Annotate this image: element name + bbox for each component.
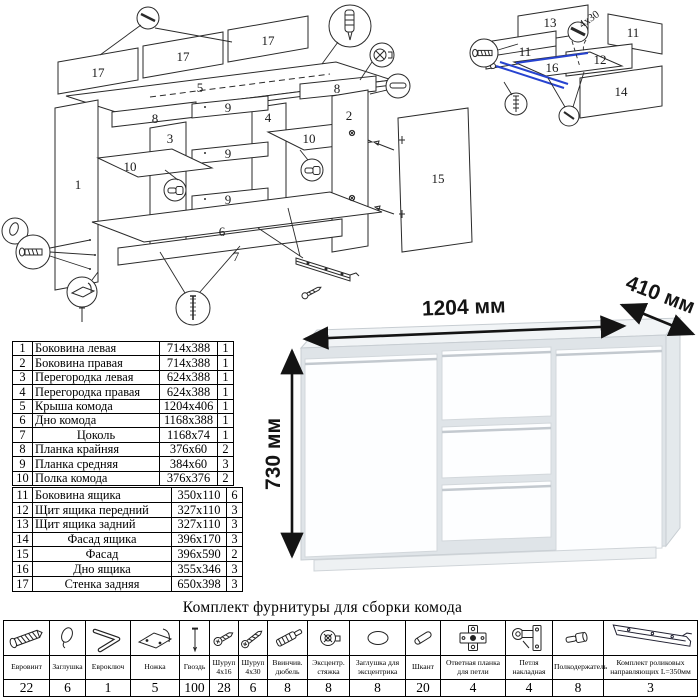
width-dimension-label: 1204 мм — [421, 294, 505, 320]
hardware-label: Шуруп 4x16 — [210, 656, 239, 680]
part-label: 1 — [75, 177, 82, 192]
screw-4x16-icon — [210, 623, 238, 653]
part-label: 9 — [225, 192, 232, 207]
nail-icon — [181, 623, 209, 653]
parts-list: 1Боковина левая714x3881 2Боковина правая… — [12, 341, 243, 593]
hardware-qty-row: 22 6 1 5 100 28 6 8 8 8 20 4 4 8 3 — [4, 680, 698, 697]
hardware-label: Ножка — [131, 656, 180, 680]
part-label: 3 — [167, 131, 174, 146]
part-label: 16 — [546, 60, 560, 75]
part-label: 8 — [152, 111, 159, 126]
part-label: 17 — [92, 65, 106, 80]
hardware-qty: 4 — [441, 680, 506, 697]
table-row: 8Планка крайняя376x602 — [13, 442, 234, 456]
dresser-door-right — [556, 346, 662, 552]
table-row: 15Фасад396x5902 — [13, 547, 243, 562]
table-row: 7Цоколь1168x741 — [13, 428, 234, 442]
hardware-label: Эксцентр. стяжка — [308, 656, 350, 680]
table-row: 14Фасад ящика396x1703 — [13, 532, 243, 547]
exploded-diagram-drawer: 13 11 11 12 16 14 4x30 — [448, 0, 700, 152]
hardware-label: Гвоздь — [180, 656, 210, 680]
hardware-qty: 22 — [4, 680, 50, 697]
hardware-label: Заглушка — [50, 656, 86, 680]
hardware-qty: 3 — [604, 680, 698, 697]
eurovint-icon — [5, 623, 49, 653]
hardware-qty: 8 — [553, 680, 604, 697]
detail-threaded-dowel-icon — [322, 5, 371, 64]
parts-table-drawers: 11Боковина ящика350x1106 12Щит ящика пер… — [12, 487, 243, 592]
hardware-qty: 100 — [180, 680, 210, 697]
hardware-table: Евровинт Заглушка Евроключ Ножка Гвоздь … — [3, 620, 698, 697]
hex-key-icon — [86, 623, 130, 653]
part-label: 8 — [334, 81, 341, 96]
table-row: 16Дно ящика355x3463 — [13, 562, 243, 577]
foot-icon — [132, 623, 178, 653]
part-label: 6 — [219, 224, 226, 239]
hardware-qty: 8 — [308, 680, 350, 697]
hardware-label: Ответная планка для петли — [441, 656, 506, 680]
part-label: 15 — [432, 171, 445, 186]
table-row: 5Крыша комода1204x4061 — [13, 399, 234, 413]
part-label: 9 — [225, 100, 232, 115]
detail-shelf-pin-right-icon — [300, 150, 323, 181]
table-row: 12Щит ящика передний327x1103 — [13, 502, 243, 517]
hardware-label: Комплект роликовых направляющих L=350мм — [604, 656, 698, 680]
table-row: 10Полка комода376x3762 — [13, 471, 234, 485]
panel-side-left — [55, 100, 98, 290]
eccentric-cam-icon — [308, 623, 350, 653]
screw-4x30-icon — [239, 623, 267, 653]
dresser-door-left — [305, 354, 437, 557]
dresser-render: 730 мм 1204 мм 410 мм — [268, 288, 700, 600]
hardware-qty: 8 — [268, 680, 308, 697]
table-row: 17Стенка задняя650x3983 — [13, 577, 243, 592]
threaded-dowel-icon — [268, 623, 308, 653]
drawer-rail-icon — [606, 622, 696, 654]
hardware-qty: 6 — [239, 680, 268, 697]
hardware-label: Ввинчив. дюбель — [268, 656, 308, 680]
hardware-qty: 8 — [350, 680, 406, 697]
hardware-label: Шуруп 4x30 — [239, 656, 268, 680]
hardware-label: Евроключ — [86, 656, 131, 680]
part-label: 11 — [627, 25, 640, 40]
table-row: 13Щит ящика задний327x1103 — [13, 517, 243, 532]
part-label: 10 — [303, 131, 316, 146]
part-label: 14 — [615, 84, 629, 99]
hardware-qty: 6 — [50, 680, 86, 697]
part-label: 4 — [265, 110, 272, 125]
part-label: 7 — [233, 249, 240, 264]
hardware-qty: 4 — [506, 680, 553, 697]
part-label: 17 — [177, 49, 191, 64]
hardware-qty: 5 — [131, 680, 180, 697]
table-row: 11Боковина ящика350x1106 — [13, 487, 243, 502]
dresser-right-face — [666, 318, 680, 546]
cap-icon — [51, 623, 85, 653]
part-qty: 1 — [218, 342, 234, 356]
hardware-labels-row: Евровинт Заглушка Евроключ Ножка Гвоздь … — [4, 656, 698, 680]
table-row: 2Боковина правая714x3881 — [13, 356, 234, 370]
part-name: Боковина левая — [33, 342, 160, 356]
eccentric-cap-icon — [353, 623, 403, 653]
height-dimension-label: 730 мм — [262, 418, 285, 490]
hardware-qty: 28 — [210, 680, 239, 697]
hinge-plate-icon — [451, 622, 495, 654]
part-label: 17 — [262, 33, 276, 48]
hardware-label: Шкант — [406, 656, 441, 680]
detail-screw-drawer-icon — [504, 82, 527, 115]
assembly-instruction-page: 17 17 17 5 8 8 9 9 9 3 4 1 2 10 10 6 7 1… — [0, 0, 700, 700]
part-label: 9 — [225, 146, 232, 161]
hinge-icon — [507, 622, 551, 654]
part-label: 5 — [197, 80, 204, 95]
dresser-drawer-1 — [442, 347, 551, 420]
table-row: 6Дно комода1168x3881 — [13, 413, 234, 427]
hardware-kit-title: Комплект фурнитуры для сборки комода — [0, 599, 645, 617]
table-row: 3Перегородка левая624x3881 — [13, 370, 234, 384]
part-label: 2 — [346, 108, 353, 123]
dowel-icon — [406, 623, 440, 653]
hardware-qty: 20 — [406, 680, 441, 697]
part-label: 10 — [124, 159, 137, 174]
hardware-label: Евровинт — [4, 656, 50, 680]
table-row: 4Перегородка правая624x3881 — [13, 385, 234, 399]
part-size: 714x388 — [160, 342, 218, 356]
part-label: 13 — [544, 15, 557, 30]
hardware-label: Заглушка для эксцентрика — [350, 656, 406, 680]
parts-table-main: 1Боковина левая714x3881 2Боковина правая… — [12, 341, 234, 486]
part-label: 12 — [594, 52, 607, 67]
hardware-icons-row — [4, 621, 698, 656]
shelf-pin-icon — [556, 623, 600, 653]
hardware-table-wrap: Евровинт Заглушка Евроключ Ножка Гвоздь … — [3, 620, 698, 697]
hardware-label: Петля накладная — [506, 656, 553, 680]
table-row: 9Планка средняя384x603 — [13, 457, 234, 471]
hardware-qty: 1 — [86, 680, 131, 697]
table-row: 1Боковина левая714x3881 — [13, 342, 234, 356]
hardware-label: Полкодержатель — [553, 656, 604, 680]
depth-dimension-label: 410 мм — [623, 271, 698, 318]
part-num: 1 — [13, 342, 33, 356]
part-label: 11 — [519, 44, 532, 59]
